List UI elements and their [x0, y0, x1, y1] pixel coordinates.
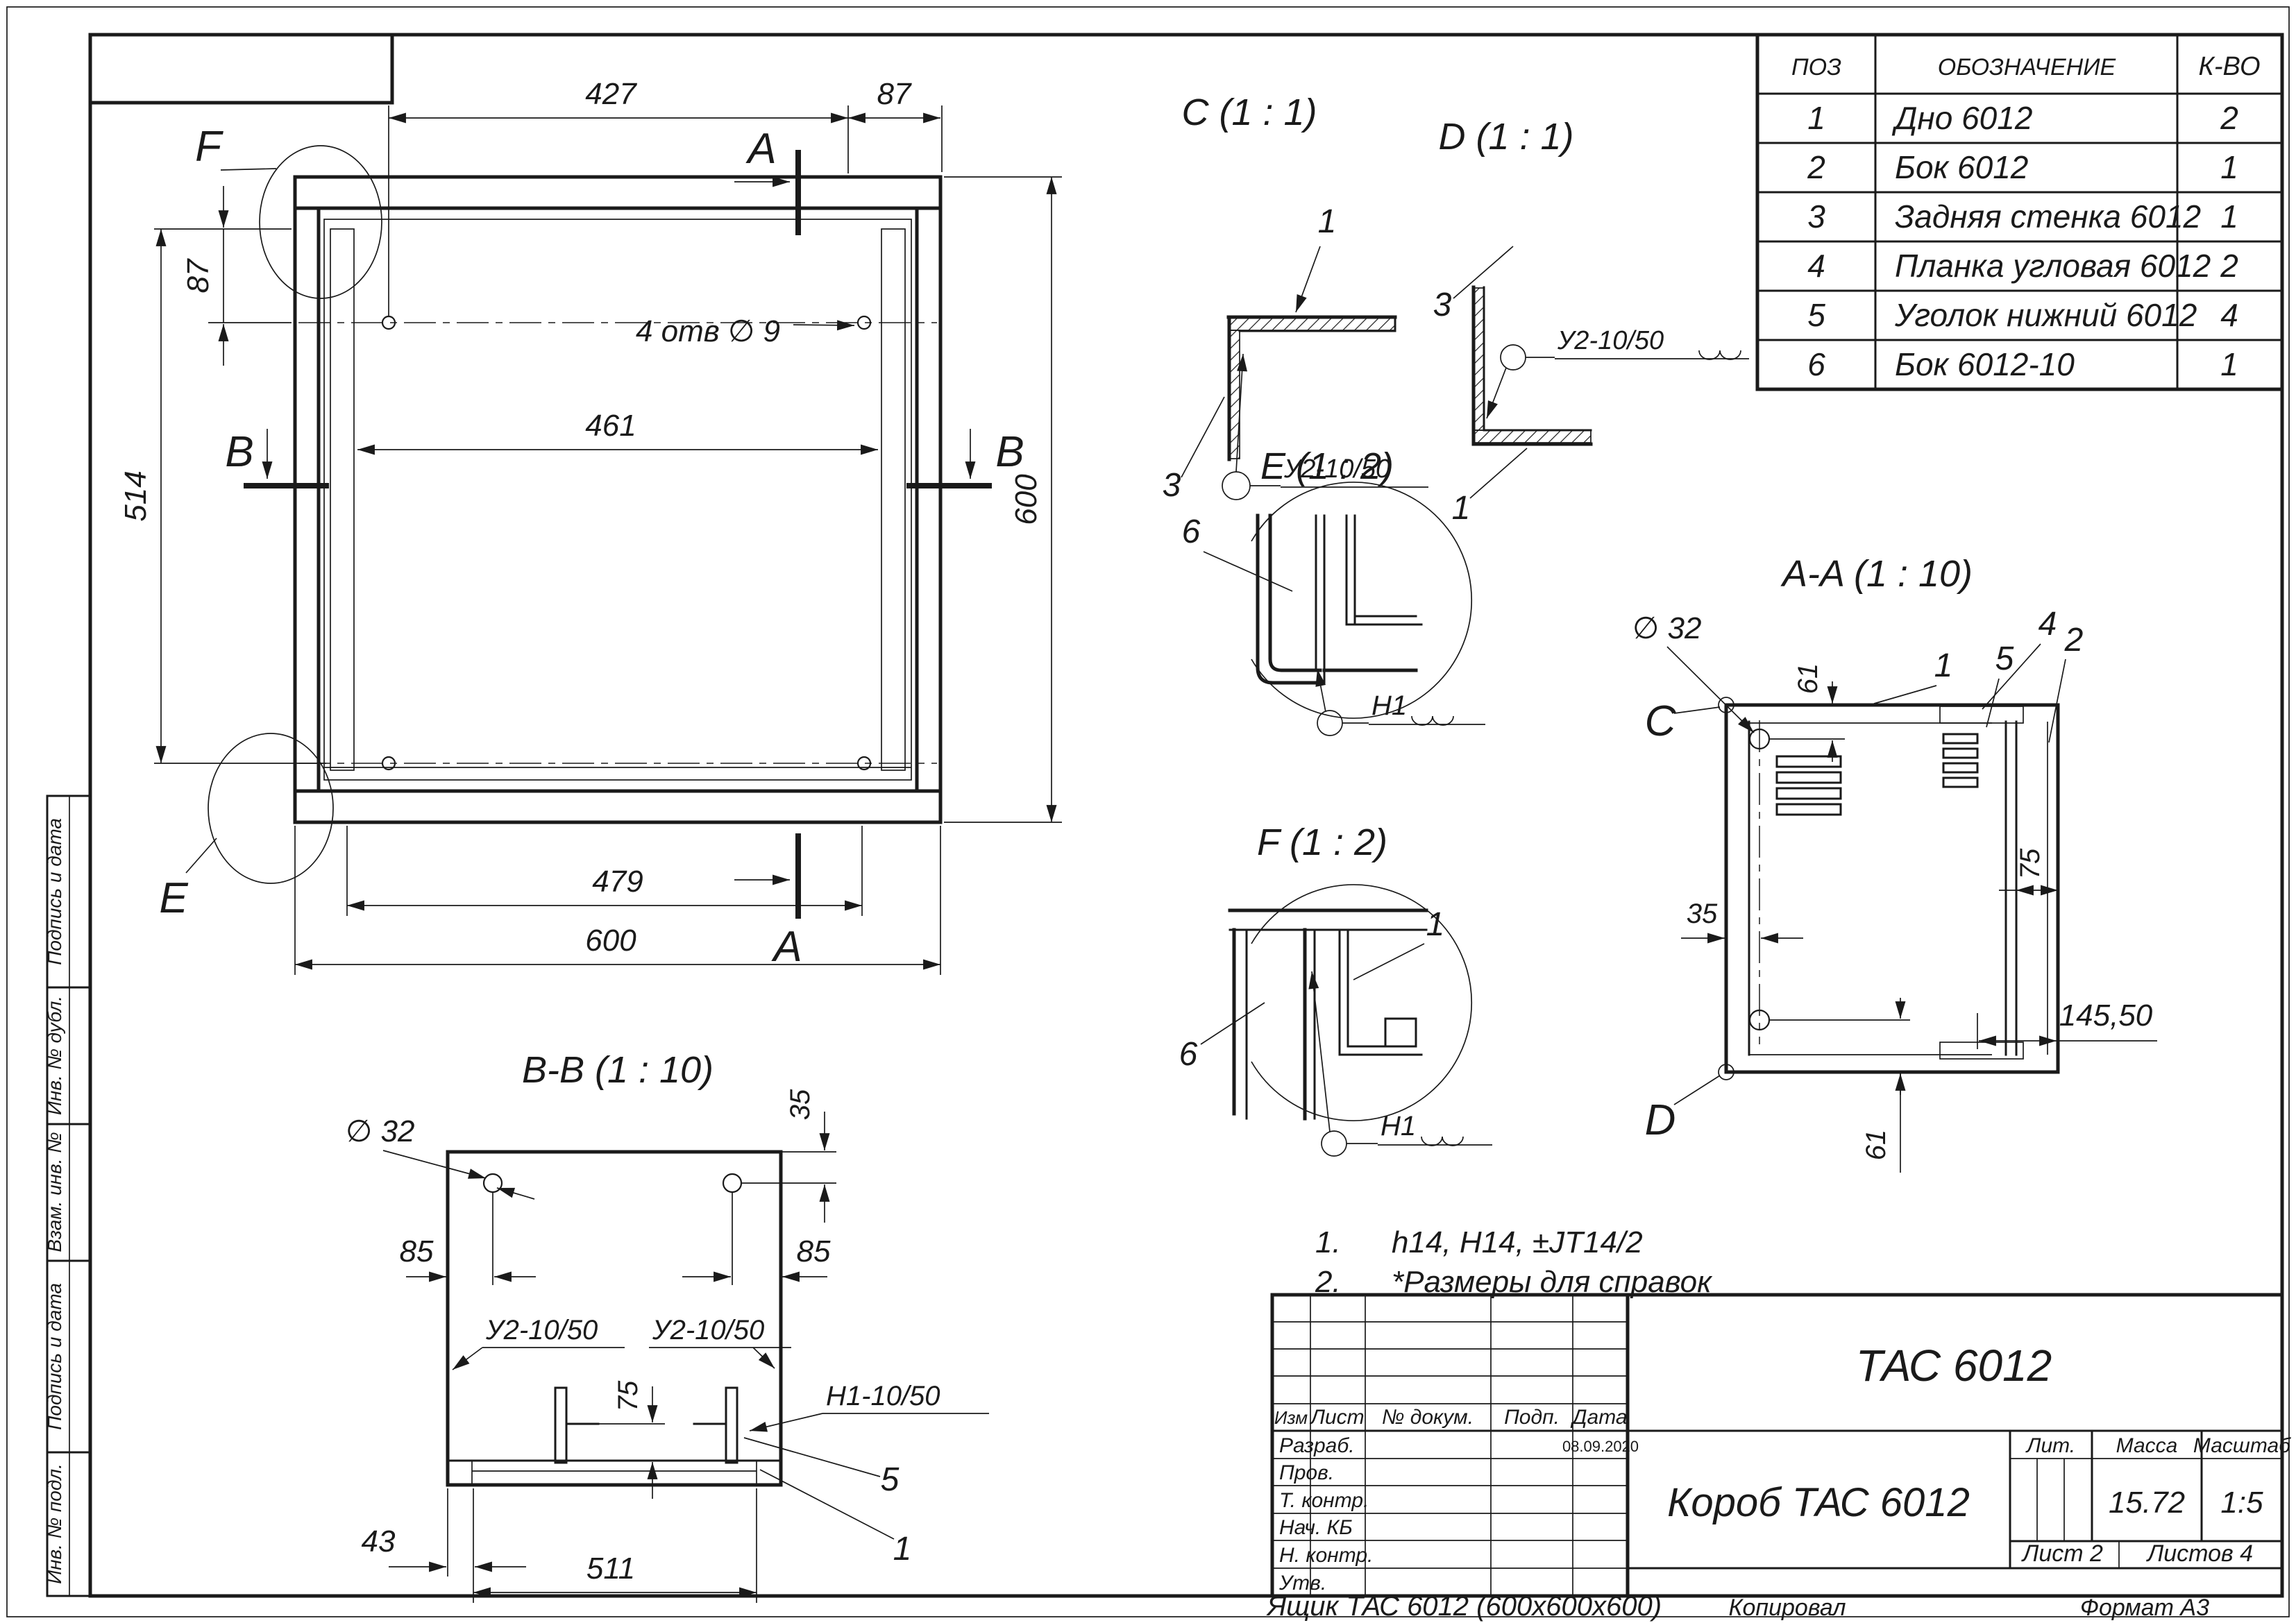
dim-461: 461	[585, 409, 636, 443]
weld-designation-bottom: Н1-10/50	[826, 1381, 940, 1411]
detail-c-title: C (1 : 1)	[1181, 92, 1317, 133]
col-list: Лист	[1309, 1406, 1364, 1429]
cell-pos: 6	[1807, 346, 1825, 382]
dia-32-label: ∅ 32	[1632, 611, 1702, 645]
detail-view-d: D (1 : 1) 3 У2-10/50 1	[1433, 116, 1749, 527]
mass-label: Масса	[2116, 1434, 2178, 1457]
callout-3: 3	[1433, 287, 1452, 323]
col-podp: Подп.	[1504, 1406, 1560, 1429]
sidebar-cell-label: Взам. инв. №	[44, 1132, 65, 1252]
weld-symbol-circle	[1501, 345, 1526, 370]
top-left-stamp-box	[90, 35, 392, 103]
table-row: 6 Бок 6012-10 1	[1807, 346, 2238, 382]
weld-symbol-circle	[1317, 711, 1342, 736]
callout-5: 5	[881, 1461, 900, 1498]
section-label-a: A	[745, 125, 776, 173]
dia-32-label: ∅ 32	[346, 1114, 415, 1148]
col-data: Дата	[1570, 1406, 1627, 1429]
bottom-angle-bracket-left	[555, 1388, 598, 1463]
dim-87-left: 87	[181, 258, 215, 293]
main-view: 4 отв ∅ 9 427 87 A A B B	[119, 77, 1062, 975]
sheets-total: Листов 4	[2146, 1540, 2253, 1567]
detail-callout-d: D	[1645, 1096, 1676, 1144]
detail-view-e: E (1 : 2) 6 Н1	[1182, 445, 1485, 736]
cell-qty: 2	[2220, 248, 2238, 284]
weld-designation-left: У2-10/50	[485, 1315, 598, 1345]
perforated-strip-left	[330, 229, 354, 770]
scale-label: Масштаб	[2193, 1434, 2291, 1457]
cell-pos: 1	[1807, 100, 1825, 136]
section-aa-title: A-A (1 : 10)	[1780, 553, 1973, 595]
sidebar-cell-label: Инв. № дубл.	[44, 996, 65, 1115]
cell-name: Планка угловая 6012	[1895, 248, 2211, 284]
doc-name: Короб ТАС 6012	[1667, 1480, 1970, 1525]
callout-6: 6	[1179, 1036, 1198, 1073]
weld-symbol-circle	[1322, 1131, 1347, 1156]
table-row: 5 Уголок нижний 6012 4	[1807, 297, 2238, 333]
cell-qty: 1	[2220, 346, 2238, 382]
footer-drawing-name: Ящик ТАС 6012 (600х600х600)	[1266, 1591, 1662, 1622]
callout-1: 1	[1452, 490, 1471, 527]
sidebar-columns: Подпись и дата Инв. № дубл. Взам. инв. №…	[44, 796, 90, 1596]
row-tkontr: Т. контр.	[1279, 1489, 1369, 1512]
row-razrab: Разраб.	[1279, 1434, 1355, 1457]
sheet-number: Лист 2	[2021, 1540, 2103, 1567]
detail-d-title: D (1 : 1)	[1438, 116, 1573, 158]
detail-label-e: E	[159, 874, 188, 922]
table-row: 4 Планка угловая 6012 2	[1807, 248, 2238, 284]
cell-name: Бок 6012	[1895, 149, 2028, 185]
callout-1: 1	[1426, 906, 1445, 943]
lit-label: Лит.	[2025, 1434, 2075, 1457]
cell-name: Бок 6012-10	[1895, 346, 2075, 382]
detail-f-title: F (1 : 2)	[1257, 822, 1387, 863]
technical-notes: 1. h14, H14, ±JT14/2 2. *Размеры для спр…	[1315, 1225, 1713, 1299]
vent-louvers-right	[1943, 734, 1977, 787]
section-label-b: B	[995, 428, 1024, 476]
callout-1: 1	[1934, 647, 1953, 684]
cell-pos: 3	[1807, 198, 1825, 235]
col-doc: № докум.	[1382, 1406, 1474, 1429]
callout-6: 6	[1182, 513, 1201, 550]
dim-75: 75	[2015, 848, 2045, 879]
dim-35: 35	[1687, 899, 1718, 929]
parts-table: ПОЗ ОБОЗНАЧЕНИЕ К-ВО 1 Дно 6012 2 2 Бок …	[1757, 35, 2282, 389]
cell-qty: 1	[2220, 198, 2238, 235]
sidebar-cell-label: Инв. № подл.	[44, 1463, 65, 1584]
scale-value: 1:5	[2220, 1486, 2263, 1520]
cell-pos: 2	[1807, 149, 1825, 185]
cell-name: Задняя стенка 6012	[1895, 198, 2201, 235]
section-bb-title: B-B (1 : 10)	[522, 1049, 714, 1091]
callout-4: 4	[2038, 606, 2057, 643]
drawing-sheet: Подпись и дата Инв. № дубл. Взам. инв. №…	[0, 0, 2296, 1623]
dim-61-bottom: 61	[1861, 1130, 1891, 1161]
hole-32mm-left	[484, 1174, 502, 1192]
note-1-text: h14, H14, ±JT14/2	[1392, 1225, 1643, 1259]
row-prov: Пров.	[1279, 1461, 1334, 1484]
weld-contour-arcs	[1412, 716, 1453, 725]
section-b-marker-right: B	[909, 428, 1024, 486]
detail-circle-e	[208, 733, 333, 883]
dim-514: 514	[119, 470, 153, 521]
dim-600-bottom: 600	[585, 924, 636, 958]
cell-pos: 4	[1807, 248, 1825, 284]
cell-name: Уголок нижний 6012	[1894, 297, 2197, 333]
section-b-marker-left: B	[225, 428, 326, 486]
dim-145-50: 145,50	[2059, 999, 2153, 1033]
table-header-pos: ПОЗ	[1791, 54, 1841, 80]
perforated-strip-right	[881, 229, 905, 770]
vent-louvers-left	[1777, 756, 1841, 815]
section-view-bb: B-B (1 : 10) ∅ 32 85 85 35 У2-10/50 У2-1…	[346, 1049, 989, 1603]
callout-3: 3	[1163, 467, 1181, 504]
dim-427: 427	[585, 77, 637, 111]
table-header-name: ОБОЗНАЧЕНИЕ	[1938, 54, 2116, 80]
corner-plate-bottom	[1940, 1042, 2023, 1059]
weld-designation: Н1	[1381, 1111, 1416, 1141]
cell-pos: 5	[1807, 297, 1825, 333]
callout-1: 1	[893, 1531, 912, 1567]
dim-35: 35	[785, 1089, 816, 1120]
callout-2: 2	[2064, 622, 2084, 658]
dim-479: 479	[592, 865, 643, 899]
sidebar-cell-label: Подпись и дата	[44, 1283, 65, 1430]
title-block: Изм Лист № докум. Подп. Дата Разраб. Про…	[1272, 1295, 2291, 1596]
holes-count-label: 4 отв ∅ 9	[636, 314, 780, 348]
mass-value: 15.72	[2109, 1486, 2185, 1520]
row-nkontr: Н. контр.	[1279, 1544, 1373, 1567]
dim-43: 43	[362, 1524, 396, 1558]
dim-511: 511	[586, 1552, 635, 1586]
footer-copied-by: Копировал	[1728, 1595, 1846, 1621]
table-row: 1 Дно 6012 2	[1807, 100, 2238, 136]
section-view-aa: A-A (1 : 10) ∅ 32 C	[1632, 553, 2157, 1173]
doc-number: ТАС 6012	[1856, 1341, 2052, 1391]
sidebar-cell-label: Подпись и дата	[44, 818, 65, 965]
weld-designation: Н1	[1371, 690, 1407, 721]
corner-plate-top	[1940, 706, 2023, 723]
detail-circle-f	[260, 146, 382, 298]
weld-symbol-circle	[1222, 472, 1250, 500]
weld-designation: У2-10/50	[1557, 326, 1664, 355]
table-row: 3 Задняя стенка 6012 1	[1807, 198, 2238, 235]
weld-contour-arcs	[1699, 350, 1741, 359]
col-izm: Изм	[1274, 1407, 1308, 1428]
section-a-marker-bottom: A	[734, 836, 802, 971]
footer-format: Формат А3	[2080, 1595, 2209, 1621]
dim-61-top: 61	[1793, 663, 1823, 695]
dim-85-right: 85	[797, 1234, 831, 1268]
detail-label-f: F	[195, 123, 223, 171]
cell-name: Дно 6012	[1891, 100, 2032, 136]
table-row: 2 Бок 6012 1	[1807, 149, 2238, 185]
hole-32mm-right	[723, 1174, 741, 1192]
dim-75: 75	[613, 1380, 643, 1411]
cell-qty: 2	[2220, 100, 2238, 136]
row-nachkb: Нач. КБ	[1279, 1516, 1353, 1539]
detail-e-title: E (1 : 2)	[1260, 445, 1394, 487]
cell-qty: 1	[2220, 149, 2238, 185]
detail-view-c: C (1 : 1) 1 3 У2-10/50	[1163, 92, 1428, 504]
callout-5: 5	[1995, 640, 2014, 677]
section-label-b: B	[225, 428, 253, 476]
weld-designation-right: У2-10/50	[652, 1315, 764, 1345]
date-value: 08.09.2020	[1562, 1438, 1639, 1455]
callout-1: 1	[1318, 203, 1337, 240]
dim-600-right: 600	[1009, 474, 1043, 525]
section-label-a: A	[770, 923, 802, 971]
weld-contour-arcs	[1421, 1137, 1463, 1146]
detail-callout-c: C	[1645, 697, 1677, 745]
note-1-number: 1.	[1315, 1225, 1341, 1259]
dim-87-top: 87	[877, 77, 912, 111]
dim-85-left: 85	[400, 1234, 434, 1268]
detail-view-f: F (1 : 2) 1 6 Н1	[1179, 822, 1492, 1156]
cell-qty: 4	[2220, 297, 2238, 333]
bottom-angle-bracket-right	[694, 1388, 737, 1463]
table-header-qty: К-ВО	[2198, 52, 2260, 81]
